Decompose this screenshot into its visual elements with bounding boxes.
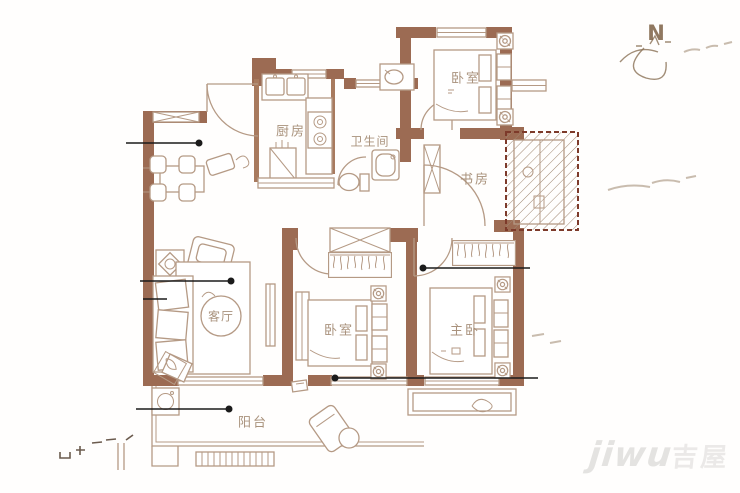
floor-plan: 厨房 卫生间 卧室 书房 客厅 卧室 主卧 阳台 N jiwu吉屋 bbox=[0, 0, 740, 493]
bay-window bbox=[408, 389, 516, 415]
compass-sketch bbox=[620, 36, 732, 79]
watermark-cjk: 吉屋 bbox=[670, 443, 731, 473]
compass-north-label: N bbox=[647, 21, 665, 45]
dining-furniture bbox=[143, 153, 249, 201]
room-label-master: 主卧 bbox=[450, 320, 480, 339]
room-label-living: 客厅 bbox=[208, 308, 234, 325]
room-label-balcony: 阳台 bbox=[238, 412, 268, 431]
room-label-bathroom: 卫生间 bbox=[350, 133, 389, 150]
room-label-bedroom-middle: 卧室 bbox=[324, 320, 354, 339]
room-label-kitchen: 厨房 bbox=[276, 121, 306, 140]
floor-plan-drawing bbox=[0, 0, 740, 493]
master-bedroom-furniture bbox=[430, 241, 516, 379]
watermark-latin: jiwu bbox=[587, 435, 674, 475]
elevator-shaft bbox=[506, 132, 578, 230]
balcony-fixtures bbox=[152, 386, 424, 466]
bedroom-middle-furniture bbox=[296, 228, 392, 379]
room-label-study: 书房 bbox=[460, 169, 490, 188]
room-label-bedroom-north: 卧室 bbox=[451, 68, 481, 87]
watermark: jiwu吉屋 bbox=[587, 435, 732, 475]
